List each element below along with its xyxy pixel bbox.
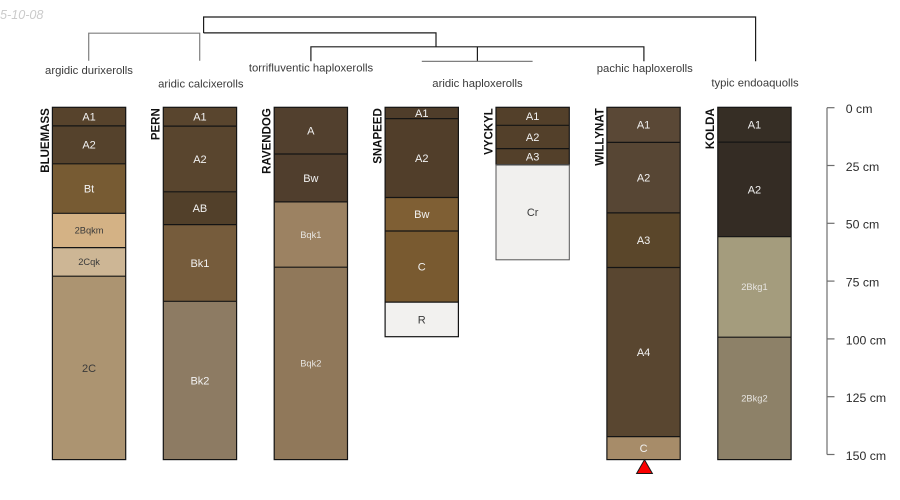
svg-text:BLUEMASS: BLUEMASS <box>40 108 52 173</box>
svg-text:argidic durixerolls: argidic durixerolls <box>45 65 133 77</box>
svg-text:A3: A3 <box>526 152 539 164</box>
svg-text:2Bkg2: 2Bkg2 <box>741 394 767 404</box>
svg-text:Bk2: Bk2 <box>190 375 209 387</box>
svg-text:A3: A3 <box>637 235 650 247</box>
svg-text:A2: A2 <box>415 153 428 165</box>
svg-text:A2: A2 <box>637 173 650 185</box>
svg-text:aridic haploxerolls: aridic haploxerolls <box>432 78 523 90</box>
svg-text:A2: A2 <box>748 184 761 196</box>
svg-text:2C: 2C <box>82 363 96 375</box>
svg-text:50 cm: 50 cm <box>846 218 880 232</box>
svg-text:Cr: Cr <box>527 207 539 219</box>
svg-text:pachic haploxerolls: pachic haploxerolls <box>597 63 693 75</box>
svg-text:torrifluventic haploxerolls: torrifluventic haploxerolls <box>249 63 374 75</box>
svg-text:A1: A1 <box>637 120 650 132</box>
svg-text:typic endoaquolls: typic endoaquolls <box>711 77 799 89</box>
svg-text:Bqk2: Bqk2 <box>300 359 321 369</box>
svg-text:A4: A4 <box>637 347 650 359</box>
svg-text:R: R <box>418 314 426 326</box>
svg-text:Bw: Bw <box>303 173 318 185</box>
svg-text:Bk1: Bk1 <box>190 258 209 270</box>
svg-text:125 cm: 125 cm <box>846 391 886 405</box>
svg-text:A2: A2 <box>193 154 206 166</box>
svg-text:Bt: Bt <box>84 183 94 195</box>
svg-text:Bqk1: Bqk1 <box>300 230 321 240</box>
svg-text:Bw: Bw <box>414 209 429 221</box>
svg-text:RAVENDOG: RAVENDOG <box>262 108 274 174</box>
svg-text:2Bqkm: 2Bqkm <box>75 226 104 236</box>
svg-text:A2: A2 <box>82 140 95 152</box>
svg-text:KOLDA: KOLDA <box>705 108 717 149</box>
svg-text:A1: A1 <box>526 111 539 123</box>
svg-text:C: C <box>418 261 426 273</box>
svg-text:25 cm: 25 cm <box>846 160 880 174</box>
svg-text:A1: A1 <box>415 108 428 120</box>
svg-text:100 cm: 100 cm <box>846 333 886 347</box>
svg-text:A1: A1 <box>82 111 95 123</box>
svg-text:VYCKYL: VYCKYL <box>483 108 495 155</box>
svg-text:aridic calcixerolls: aridic calcixerolls <box>158 79 244 91</box>
svg-text:A1: A1 <box>748 120 761 132</box>
svg-text:A1: A1 <box>193 112 206 124</box>
svg-text:WILLYNAT: WILLYNAT <box>594 108 606 166</box>
svg-text:0 cm: 0 cm <box>846 102 873 116</box>
svg-text:2Cqk: 2Cqk <box>78 257 100 267</box>
svg-text:C: C <box>640 443 648 455</box>
svg-text:PERN: PERN <box>151 108 163 140</box>
svg-text:A: A <box>307 126 315 138</box>
svg-text:SNAPEED: SNAPEED <box>373 108 385 164</box>
svg-text:5-10-08: 5-10-08 <box>0 8 43 22</box>
svg-text:AB: AB <box>193 203 208 215</box>
svg-text:2Bkg1: 2Bkg1 <box>741 282 767 292</box>
svg-text:75 cm: 75 cm <box>846 276 880 290</box>
svg-text:150 cm: 150 cm <box>846 449 886 463</box>
svg-text:A2: A2 <box>526 132 539 144</box>
